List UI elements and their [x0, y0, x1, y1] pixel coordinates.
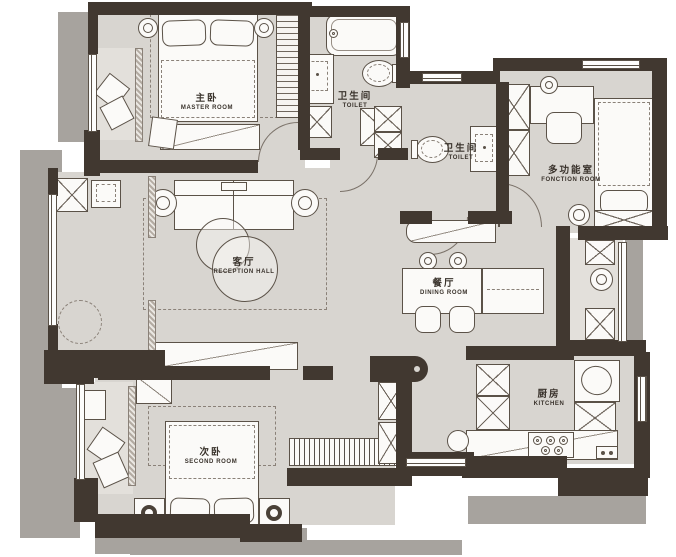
room-label-dining-zh: 餐厅 [420, 275, 468, 289]
wall [493, 58, 667, 71]
wall [287, 468, 412, 486]
plan-shadow [20, 388, 80, 538]
room-label-reception: 客厅 RECEPTION HALL [213, 254, 274, 275]
room-label-reception-zh: 客厅 [213, 254, 274, 268]
dining-sideboard-line [487, 289, 539, 290]
balcony-radiator [82, 390, 106, 420]
room-label-master: 主卧 MASTER ROOM [181, 90, 233, 111]
sofa-back-line [175, 195, 293, 196]
wall [300, 6, 410, 17]
room-label-function-en: FONCTION ROOM [541, 177, 600, 183]
bathtub-faucet [329, 29, 338, 38]
room-label-second: 次卧 SECOND ROOM [185, 444, 238, 465]
dining-chair [449, 306, 475, 333]
window [406, 458, 466, 467]
kitchen-stove [528, 432, 574, 458]
wall [378, 148, 408, 160]
plan-shadow [468, 496, 646, 524]
wall [556, 226, 570, 348]
room-label-master-en: MASTER ROOM [181, 105, 233, 111]
second-door-swing [137, 377, 171, 403]
room-label-toilet-en: TOILET [444, 155, 479, 161]
bath-vanity-basin [307, 61, 328, 91]
laundry-sink-basin [96, 184, 116, 202]
partition-hatch [135, 48, 143, 142]
knob [609, 451, 613, 455]
washing-machine [56, 178, 88, 212]
wall [88, 2, 312, 15]
wall [462, 456, 567, 478]
wall [98, 366, 270, 380]
kitchen-cabinet [476, 396, 510, 430]
window [618, 242, 627, 342]
plan-shadow [130, 540, 462, 555]
balcony-cabinet [585, 240, 615, 265]
room-label-master-zh: 主卧 [181, 90, 233, 104]
room-label-kitchen: 厨房 KITCHEN [534, 386, 565, 407]
room-label-reception-en: RECEPTION HALL [213, 269, 274, 275]
wall [44, 350, 94, 384]
room-label-function: 多功能室 FONCTION ROOM [541, 162, 600, 183]
room-label-bath-en: TOILET [338, 103, 373, 109]
dining-chair [415, 306, 441, 333]
partition-hatch [148, 176, 156, 238]
master-pillow [210, 19, 255, 47]
room-label-dining: 餐厅 DINING ROOM [420, 275, 468, 296]
toilet-seat [421, 140, 443, 158]
wall [468, 211, 512, 224]
wall [300, 148, 340, 160]
room-label-second-zh: 次卧 [185, 444, 238, 458]
wall [240, 524, 302, 542]
master-pillow [162, 19, 207, 47]
wall [400, 211, 432, 224]
toilet-tank [411, 140, 418, 159]
bathtub-inner [331, 19, 397, 51]
function-chair [546, 112, 582, 144]
wall [48, 168, 58, 196]
knob [601, 451, 605, 455]
floor-lamp-placeholder [58, 300, 102, 344]
partition-hatch [128, 386, 136, 486]
stove-burner [554, 446, 563, 455]
window [76, 384, 85, 480]
stove-burner [533, 436, 542, 445]
room-label-dining-en: DINING ROOM [420, 290, 468, 296]
window [88, 54, 97, 132]
second-lamp-right [266, 505, 282, 521]
wall [88, 2, 98, 54]
floor-plan: 主卧 MASTER ROOM 卫生间 TOILET 卫生间 TOILET 多功能… [0, 0, 676, 557]
master-lamp-right [254, 18, 274, 38]
room-label-toilet-zh: 卫生间 [444, 140, 479, 154]
hall-stool [447, 430, 469, 452]
window [48, 194, 57, 326]
entry-cabinet-knob [414, 366, 420, 372]
partition-hatch [148, 300, 156, 352]
wall [95, 514, 250, 538]
function-stool [540, 76, 558, 94]
room-label-bath: 卫生间 TOILET [338, 88, 373, 109]
wall [88, 160, 258, 173]
room-label-kitchen-en: KITCHEN [534, 401, 565, 407]
room-label-kitchen-zh: 厨房 [534, 386, 565, 400]
sofa-tray [221, 182, 247, 191]
kitchen-cabinet [476, 364, 510, 396]
wall [466, 346, 574, 360]
stove-burner [559, 436, 568, 445]
side-table-right [291, 189, 319, 217]
window [422, 73, 462, 82]
stove-burner [546, 436, 555, 445]
plan-shadow [625, 236, 643, 346]
master-lamp-left [138, 18, 158, 38]
function-ceiling-fan [568, 204, 590, 226]
room-label-toilet: 卫生间 TOILET [444, 140, 479, 161]
wall [303, 366, 333, 380]
second-door-leaf [136, 376, 172, 404]
room-label-second-en: SECOND ROOM [185, 459, 238, 465]
entry-cabinet [370, 356, 428, 382]
wall [298, 10, 310, 150]
balcony-cabinet [585, 308, 615, 340]
bath-toilet-seat [367, 64, 390, 82]
dining-sideboard [482, 268, 544, 314]
wall [496, 82, 509, 216]
master-chair [148, 116, 178, 149]
wall [652, 68, 667, 240]
stove-burner [541, 446, 550, 455]
room-label-bath-zh: 卫生间 [338, 88, 373, 102]
window [582, 60, 640, 69]
corridor-cabinet [374, 106, 402, 132]
bath-vanity-drain [316, 73, 319, 76]
function-bed-blanket [598, 102, 650, 186]
toilet-vanity-drain [483, 146, 486, 149]
room-label-function-zh: 多功能室 [541, 162, 600, 176]
kitchen-hob-box [596, 446, 618, 459]
water-heater [590, 268, 613, 291]
window [637, 376, 647, 422]
window [400, 22, 409, 58]
